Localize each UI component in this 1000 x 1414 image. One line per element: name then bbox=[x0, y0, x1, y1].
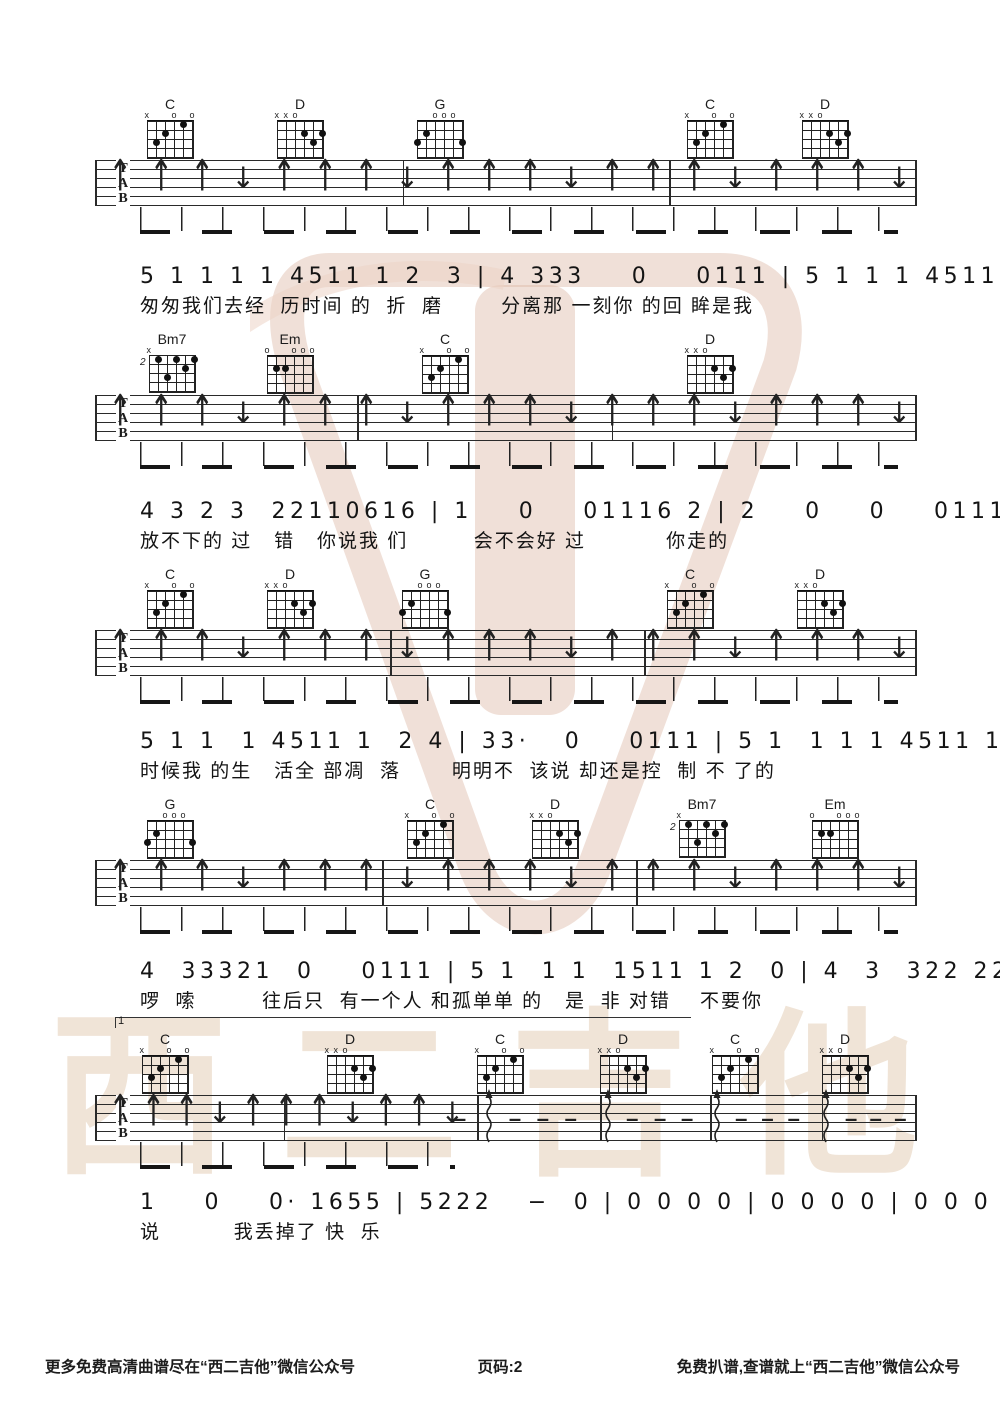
arpeggio-wave-icon bbox=[821, 1089, 831, 1148]
strum-up-arrow: ↑ bbox=[355, 390, 378, 433]
strum-up-arrow: ↑ bbox=[765, 390, 788, 433]
strum-down-arrow: ↓ bbox=[888, 864, 911, 893]
open-string-marker: o bbox=[502, 1046, 507, 1055]
finger-dot bbox=[369, 1065, 376, 1072]
strum-up-arrow: ↑ bbox=[683, 155, 706, 198]
lyrics-line: 说 我丢掉了 快 乐 bbox=[140, 1217, 382, 1244]
strum-up-arrow: ↑ bbox=[642, 155, 665, 198]
open-string-marker: o bbox=[451, 111, 456, 120]
barline bbox=[382, 860, 384, 906]
beam-groups bbox=[140, 465, 898, 469]
fretboard-grid bbox=[327, 1055, 374, 1094]
open-string-marker: o bbox=[343, 1046, 348, 1055]
chord-name: Bm7 bbox=[679, 796, 725, 812]
finger-dot bbox=[144, 839, 151, 846]
arpeggio-wave-icon bbox=[603, 1089, 613, 1148]
muted-string-marker: x bbox=[677, 811, 682, 820]
open-string-marker: o bbox=[818, 111, 823, 120]
strum-up-arrow: ↑ bbox=[847, 625, 870, 668]
open-string-marker: o bbox=[838, 1046, 843, 1055]
jianpu-number-line: 4 33321 0 0111 | 5 1 1 1 1511 1 2 0 | 4 … bbox=[140, 959, 1000, 984]
muted-string-marker: x bbox=[405, 811, 410, 820]
open-string-marker: o bbox=[442, 111, 447, 120]
open-string-marker: o bbox=[293, 111, 298, 120]
finger-dot bbox=[702, 130, 709, 137]
open-string-marker: o bbox=[710, 581, 715, 590]
finger-dot bbox=[700, 591, 707, 598]
strum-down-arrow: ↓ bbox=[208, 1099, 231, 1128]
lyrics-line: 时候我 的生 活全 部凋 落 明明不 该说 却还是控 制 不 了的 bbox=[140, 756, 776, 783]
open-string-marker: o bbox=[737, 1046, 742, 1055]
finger-dot bbox=[153, 830, 160, 837]
strum-up-arrow: ↑ bbox=[806, 155, 829, 198]
volta-bracket: 1 bbox=[115, 1017, 691, 1028]
strum-down-arrow: ↓ bbox=[560, 634, 583, 663]
strum-up-arrow: ↑ bbox=[683, 390, 706, 433]
strum-up-arrow: ↑ bbox=[642, 390, 665, 433]
finger-dot bbox=[414, 139, 421, 146]
finger-dot bbox=[191, 356, 198, 363]
strum-up-arrow: ↑ bbox=[806, 855, 829, 898]
strum-up-arrow: ↑ bbox=[806, 390, 829, 433]
strum-up-arrow: ↑ bbox=[806, 625, 829, 668]
strum-up-arrow: ↑ bbox=[109, 855, 132, 898]
strum-up-arrow: ↑ bbox=[765, 625, 788, 668]
barline bbox=[95, 395, 97, 441]
beam-groups bbox=[140, 1165, 455, 1169]
finger-dot bbox=[180, 121, 187, 128]
rest-dash: – bbox=[761, 1108, 773, 1130]
finger-dot bbox=[492, 1065, 499, 1072]
open-string-marker: o bbox=[730, 111, 735, 120]
muted-string-marker: x bbox=[607, 1046, 612, 1055]
finger-dot bbox=[148, 1074, 155, 1081]
tab-staff bbox=[95, 160, 915, 206]
muted-string-marker: x bbox=[265, 581, 270, 590]
finger-dot bbox=[846, 1065, 853, 1072]
finger-dot bbox=[818, 830, 825, 837]
strum-down-arrow: ↓ bbox=[560, 399, 583, 428]
open-string-marker: o bbox=[427, 581, 432, 590]
strum-up-arrow: ↑ bbox=[765, 855, 788, 898]
rest-dash: – bbox=[537, 1108, 549, 1130]
strum-up-arrow: ↑ bbox=[273, 625, 296, 668]
finger-dot bbox=[673, 609, 680, 616]
muted-string-marker: x bbox=[809, 111, 814, 120]
finger-dot bbox=[855, 1074, 862, 1081]
barline bbox=[95, 630, 97, 676]
open-string-marker: o bbox=[837, 811, 842, 820]
strum-up-arrow: ↑ bbox=[519, 155, 542, 198]
open-string-marker: o bbox=[712, 111, 717, 120]
muted-string-marker: x bbox=[420, 346, 425, 355]
muted-string-marker: x bbox=[694, 346, 699, 355]
open-string-marker: o bbox=[692, 581, 697, 590]
finger-dot bbox=[189, 839, 196, 846]
strum-down-arrow: ↓ bbox=[560, 864, 583, 893]
finger-dot bbox=[173, 356, 180, 363]
strum-down-arrow: ↓ bbox=[232, 399, 255, 428]
finger-dot bbox=[175, 1056, 182, 1063]
finger-dot bbox=[351, 1065, 358, 1072]
muted-string-marker: x bbox=[795, 581, 800, 590]
finger-dot bbox=[182, 365, 189, 372]
muted-string-marker: x bbox=[685, 111, 690, 120]
rest-dash: – bbox=[870, 1108, 882, 1130]
muted-string-marker: x bbox=[530, 811, 535, 820]
muted-string-marker: x bbox=[710, 1046, 715, 1055]
finger-dot bbox=[721, 821, 728, 828]
muted-string-marker: x bbox=[820, 1046, 825, 1055]
muted-string-marker: x bbox=[665, 581, 670, 590]
muted-string-marker: x bbox=[685, 346, 690, 355]
strum-up-arrow: ↑ bbox=[273, 155, 296, 198]
strum-up-arrow: ↑ bbox=[314, 390, 337, 433]
strum-up-arrow: ↑ bbox=[241, 1090, 264, 1133]
strum-up-arrow: ↑ bbox=[191, 625, 214, 668]
jianpu-number-line: 5 1 1 1 4511 1 2 4 | 33· 0 0111 | 5 1 1 … bbox=[140, 729, 1000, 754]
muted-string-marker: x bbox=[274, 581, 279, 590]
strum-up-arrow: ↑ bbox=[519, 625, 542, 668]
finger-dot bbox=[399, 609, 406, 616]
chord-name: C bbox=[687, 96, 733, 112]
muted-string-marker: x bbox=[147, 346, 152, 355]
open-string-marker: o bbox=[810, 811, 815, 820]
strum-up-arrow: ↑ bbox=[601, 155, 624, 198]
open-string-marker: o bbox=[755, 1046, 760, 1055]
finger-dot bbox=[440, 821, 447, 828]
finger-dot bbox=[720, 374, 727, 381]
finger-dot bbox=[309, 600, 316, 607]
finger-dot bbox=[694, 839, 701, 846]
barline bbox=[915, 1095, 917, 1141]
muted-string-marker: x bbox=[145, 111, 150, 120]
barline bbox=[95, 160, 97, 206]
chord-name: C bbox=[422, 331, 468, 347]
strum-down-arrow: ↓ bbox=[232, 864, 255, 893]
muted-string-marker: x bbox=[475, 1046, 480, 1055]
strum-down-arrow: ↓ bbox=[396, 864, 419, 893]
rest-dash: – bbox=[788, 1108, 800, 1130]
strum-up-arrow: ↑ bbox=[191, 155, 214, 198]
chord-name: Em bbox=[812, 796, 858, 812]
strum-down-arrow: ↓ bbox=[560, 164, 583, 193]
jianpu-number-line: 1 0 0· 1655 | 5222 − 0 | 0 0 0 0 | 0 0 0… bbox=[140, 1190, 1000, 1215]
open-string-marker: o bbox=[520, 1046, 525, 1055]
muted-string-marker: x bbox=[539, 811, 544, 820]
jianpu-number-line: 5 1 1 1 1 4511 1 2 3 | 4 333 0 0111 | 5 … bbox=[140, 264, 1000, 289]
chord-name: Bm7 bbox=[149, 331, 195, 347]
strum-up-arrow: ↑ bbox=[150, 855, 173, 898]
finger-dot bbox=[844, 130, 851, 137]
strum-up-arrow: ↑ bbox=[273, 855, 296, 898]
strum-up-arrow: ↑ bbox=[314, 155, 337, 198]
tab-staff bbox=[95, 630, 915, 676]
barline bbox=[95, 1095, 97, 1141]
strum-down-arrow: ↓ bbox=[232, 164, 255, 193]
finger-dot bbox=[164, 374, 171, 381]
chord-name: C bbox=[712, 1031, 758, 1047]
finger-dot bbox=[718, 1074, 725, 1081]
finger-dot bbox=[839, 600, 846, 607]
finger-dot bbox=[444, 609, 451, 616]
strum-up-arrow: ↑ bbox=[273, 390, 296, 433]
finger-dot bbox=[273, 365, 280, 372]
chord-name: Em bbox=[267, 331, 313, 347]
note-stems bbox=[140, 442, 898, 466]
finger-dot bbox=[720, 121, 727, 128]
finger-dot bbox=[422, 830, 429, 837]
strum-down-arrow: ↓ bbox=[396, 164, 419, 193]
barline bbox=[477, 1095, 479, 1141]
finger-dot bbox=[408, 600, 415, 607]
finger-dot bbox=[821, 600, 828, 607]
footer-right-text: 免费扒谱,查谱就上“西二吉他”微信公众号 bbox=[677, 1355, 960, 1377]
open-string-marker: o bbox=[432, 811, 437, 820]
finger-dot bbox=[556, 830, 563, 837]
open-string-marker: o bbox=[418, 581, 423, 590]
finger-dot bbox=[826, 130, 833, 137]
muted-string-marker: x bbox=[598, 1046, 603, 1055]
open-string-marker: o bbox=[855, 811, 860, 820]
chord-name: C bbox=[477, 1031, 523, 1047]
lyrics-line: 放不下的 过 错 你说我 们 会不会好 过 你走的 bbox=[140, 526, 729, 553]
strum-down-arrow: ↓ bbox=[396, 634, 419, 663]
finger-dot bbox=[428, 374, 435, 381]
strum-up-arrow: ↑ bbox=[519, 855, 542, 898]
page-footer: 更多免费高清曲谱尽在“西二吉他”微信公众号 页码:2 免费扒谱,查谱就上“西二吉… bbox=[0, 1355, 1000, 1385]
strum-up-arrow: ↑ bbox=[109, 1090, 132, 1133]
finger-dot bbox=[483, 1074, 490, 1081]
chord-name: C bbox=[147, 96, 193, 112]
finger-dot bbox=[162, 130, 169, 137]
finger-dot bbox=[155, 356, 162, 363]
open-string-marker: o bbox=[172, 111, 177, 120]
open-string-marker: o bbox=[301, 346, 306, 355]
open-string-marker: o bbox=[548, 811, 553, 820]
strum-up-arrow: ↑ bbox=[519, 390, 542, 433]
finger-dot bbox=[633, 1074, 640, 1081]
barline bbox=[390, 630, 392, 676]
strum-up-arrow: ↑ bbox=[437, 855, 460, 898]
finger-dot bbox=[565, 839, 572, 846]
rest-dash: – bbox=[565, 1108, 577, 1130]
strum-up-arrow: ↑ bbox=[437, 155, 460, 198]
strum-up-arrow: ↑ bbox=[374, 1090, 397, 1133]
muted-string-marker: x bbox=[284, 111, 289, 120]
strum-down-arrow: ↓ bbox=[888, 399, 911, 428]
finger-dot bbox=[300, 609, 307, 616]
open-string-marker: o bbox=[447, 346, 452, 355]
strum-up-arrow: ↑ bbox=[175, 1090, 198, 1133]
chord-name: C bbox=[147, 566, 193, 582]
strum-up-arrow: ↑ bbox=[109, 155, 132, 198]
muted-string-marker: x bbox=[275, 111, 280, 120]
beam-groups bbox=[140, 700, 898, 704]
open-string-marker: o bbox=[181, 811, 186, 820]
lyrics-line: 啰 嗦 往后只 有一个人 和孤单单 的 是 非 对错 不要你 bbox=[140, 986, 763, 1013]
strum-up-arrow: ↑ bbox=[150, 390, 173, 433]
strum-up-arrow: ↑ bbox=[355, 155, 378, 198]
finger-dot bbox=[455, 356, 462, 363]
strum-up-arrow: ↑ bbox=[437, 625, 460, 668]
rest-dash: – bbox=[654, 1108, 666, 1130]
strum-up-arrow: ↑ bbox=[191, 390, 214, 433]
finger-dot bbox=[642, 1065, 649, 1072]
finger-dot bbox=[310, 139, 317, 146]
finger-dot bbox=[835, 139, 842, 146]
strum-up-arrow: ↑ bbox=[355, 625, 378, 668]
open-string-marker: o bbox=[265, 346, 270, 355]
strum-up-arrow: ↑ bbox=[355, 855, 378, 898]
finger-dot bbox=[864, 1065, 871, 1072]
finger-dot bbox=[437, 365, 444, 372]
note-stems bbox=[140, 1142, 455, 1166]
strum-up-arrow: ↑ bbox=[314, 625, 337, 668]
finger-dot bbox=[301, 130, 308, 137]
tab-staff bbox=[95, 860, 915, 906]
barline bbox=[669, 160, 671, 206]
chord-name: C bbox=[407, 796, 453, 812]
open-string-marker: o bbox=[433, 111, 438, 120]
muted-string-marker: x bbox=[334, 1046, 339, 1055]
finger-dot bbox=[153, 609, 160, 616]
rest-dash: – bbox=[626, 1108, 638, 1130]
strum-down-arrow: ↓ bbox=[341, 1099, 364, 1128]
open-string-marker: o bbox=[167, 1046, 172, 1055]
finger-dot bbox=[711, 365, 718, 372]
finger-dot bbox=[319, 130, 326, 137]
arpeggio-wave-icon bbox=[712, 1089, 722, 1148]
strum-up-arrow: ↑ bbox=[847, 155, 870, 198]
strum-up-arrow: ↑ bbox=[308, 1090, 331, 1133]
open-string-marker: o bbox=[172, 581, 177, 590]
open-string-marker: o bbox=[703, 346, 708, 355]
finger-dot bbox=[827, 830, 834, 837]
open-string-marker: o bbox=[190, 581, 195, 590]
strum-down-arrow: ↓ bbox=[724, 634, 747, 663]
muted-string-marker: x bbox=[800, 111, 805, 120]
rest-dash: – bbox=[509, 1108, 521, 1130]
strum-up-arrow: ↑ bbox=[478, 155, 501, 198]
strum-up-arrow: ↑ bbox=[478, 855, 501, 898]
muted-string-marker: x bbox=[140, 1046, 145, 1055]
barline bbox=[915, 160, 917, 206]
strum-down-arrow: ↓ bbox=[232, 634, 255, 663]
open-string-marker: o bbox=[436, 581, 441, 590]
muted-string-marker: x bbox=[804, 581, 809, 590]
finger-dot bbox=[413, 839, 420, 846]
tab-staff bbox=[95, 395, 915, 441]
rest-dash: – bbox=[454, 1108, 466, 1130]
strum-up-arrow: ↑ bbox=[601, 390, 624, 433]
strum-up-arrow: ↑ bbox=[109, 625, 132, 668]
note-stems bbox=[140, 677, 898, 701]
base-fret-label: 2 bbox=[670, 822, 676, 833]
open-string-marker: o bbox=[172, 811, 177, 820]
open-string-marker: o bbox=[292, 346, 297, 355]
chord-name: G bbox=[417, 96, 463, 112]
muted-string-marker: x bbox=[829, 1046, 834, 1055]
finger-dot bbox=[745, 1056, 752, 1063]
strum-up-arrow: ↑ bbox=[142, 1090, 165, 1133]
barline bbox=[95, 860, 97, 906]
open-string-marker: o bbox=[310, 346, 315, 355]
strum-up-arrow: ↑ bbox=[683, 855, 706, 898]
strum-down-arrow: ↓ bbox=[724, 399, 747, 428]
lyrics-line: 匆匆我们去经 历时间 的 折 磨 分离那 一刻你 的回 眸是我 bbox=[140, 291, 754, 318]
finger-dot bbox=[830, 609, 837, 616]
finger-dot bbox=[693, 139, 700, 146]
strum-up-arrow: ↑ bbox=[150, 625, 173, 668]
finger-dot bbox=[712, 830, 719, 837]
finger-dot bbox=[624, 1065, 631, 1072]
finger-dot bbox=[685, 821, 692, 828]
jianpu-number-line: 4 3 2 3 22110616 | 1 0 01116 2 | 2 0 0 0… bbox=[140, 499, 1000, 524]
finger-dot bbox=[162, 600, 169, 607]
open-string-marker: o bbox=[185, 1046, 190, 1055]
strum-up-arrow: ↑ bbox=[437, 390, 460, 433]
beam-groups bbox=[140, 930, 898, 934]
strum-up-arrow: ↑ bbox=[478, 625, 501, 668]
barline bbox=[600, 1095, 602, 1141]
finger-dot bbox=[180, 591, 187, 598]
strum-up-arrow: ↑ bbox=[314, 855, 337, 898]
note-stems bbox=[140, 907, 898, 931]
barline bbox=[636, 860, 638, 906]
chord-name: G bbox=[147, 796, 193, 812]
open-string-marker: o bbox=[163, 811, 168, 820]
note-stems bbox=[140, 207, 898, 231]
finger-dot bbox=[729, 365, 736, 372]
rest-dash: – bbox=[735, 1108, 747, 1130]
finger-dot bbox=[510, 1056, 517, 1063]
barline bbox=[915, 860, 917, 906]
strum-down-arrow: ↓ bbox=[888, 164, 911, 193]
strum-up-arrow: ↑ bbox=[601, 855, 624, 898]
sheet-music-page: 西二吉他 CxooDxxoGoooCxooDxxoTAB↑↑↑↓↑↑↑↓↑↑↑↓… bbox=[0, 0, 1000, 1414]
finger-dot bbox=[157, 1065, 164, 1072]
volta-number: 1 bbox=[118, 1015, 124, 1027]
open-string-marker: o bbox=[465, 346, 470, 355]
muted-string-marker: x bbox=[325, 1046, 330, 1055]
finger-dot bbox=[459, 139, 466, 146]
strum-up-arrow: ↑ bbox=[683, 625, 706, 668]
finger-dot bbox=[423, 130, 430, 137]
strum-up-arrow: ↑ bbox=[601, 625, 624, 668]
strum-up-arrow: ↑ bbox=[150, 155, 173, 198]
strum-up-arrow: ↑ bbox=[847, 855, 870, 898]
barline bbox=[915, 395, 917, 441]
strum-down-arrow: ↓ bbox=[724, 164, 747, 193]
strum-up-arrow: ↑ bbox=[407, 1090, 430, 1133]
strum-up-arrow: ↑ bbox=[478, 390, 501, 433]
open-string-marker: o bbox=[813, 581, 818, 590]
open-string-marker: o bbox=[616, 1046, 621, 1055]
open-string-marker: o bbox=[450, 811, 455, 820]
finger-dot bbox=[153, 139, 160, 146]
finger-dot bbox=[291, 600, 298, 607]
strum-down-arrow: ↓ bbox=[888, 634, 911, 663]
strum-up-arrow: ↑ bbox=[191, 855, 214, 898]
base-fret-label: 2 bbox=[140, 357, 146, 368]
finger-dot bbox=[360, 1074, 367, 1081]
finger-dot bbox=[703, 821, 710, 828]
finger-dot bbox=[682, 600, 689, 607]
finger-dot bbox=[727, 1065, 734, 1072]
barline bbox=[915, 630, 917, 676]
strum-up-arrow: ↑ bbox=[275, 1090, 298, 1133]
